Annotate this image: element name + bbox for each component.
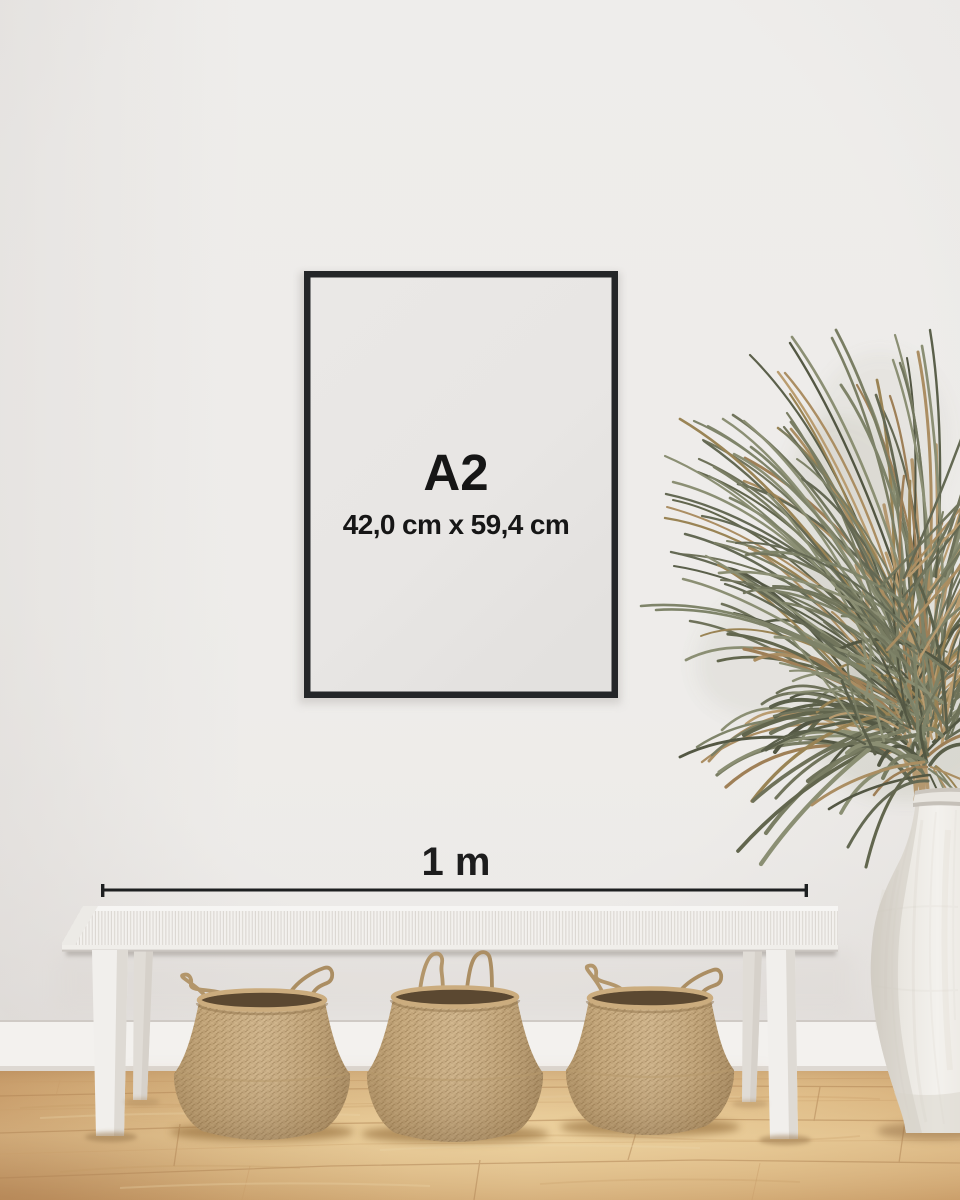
svg-text:A2: A2 <box>423 444 488 501</box>
svg-text:1 m: 1 m <box>422 840 491 884</box>
svg-text:42,0 cm x 59,4 cm: 42,0 cm x 59,4 cm <box>343 509 569 540</box>
